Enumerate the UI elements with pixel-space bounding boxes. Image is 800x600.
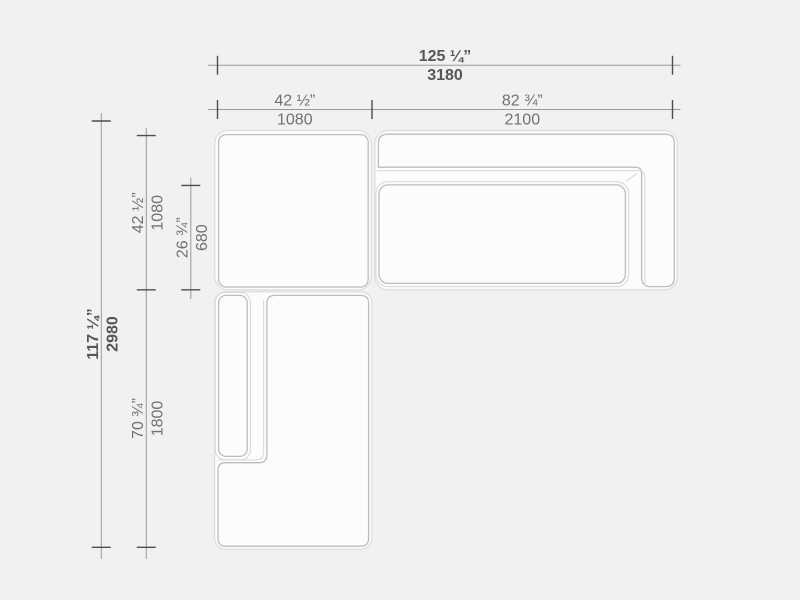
- svg-text:42 ½”: 42 ½”: [130, 192, 147, 233]
- svg-text:1080: 1080: [277, 112, 313, 129]
- svg-text:26 ¾”: 26 ¾”: [174, 217, 191, 258]
- svg-text:3180: 3180: [427, 67, 463, 84]
- svg-text:2100: 2100: [505, 112, 541, 129]
- svg-text:82 ¾”: 82 ¾”: [502, 93, 543, 110]
- svg-text:1800: 1800: [149, 401, 166, 437]
- svg-text:2980: 2980: [104, 316, 121, 352]
- svg-text:42 ½”: 42 ½”: [274, 93, 315, 110]
- svg-text:1080: 1080: [149, 195, 166, 231]
- svg-text:680: 680: [194, 224, 211, 251]
- svg-text:117 ¼”: 117 ¼”: [85, 308, 102, 360]
- svg-text:125 ¼”: 125 ¼”: [419, 48, 471, 65]
- svg-text:70 ¾”: 70 ¾”: [130, 398, 147, 439]
